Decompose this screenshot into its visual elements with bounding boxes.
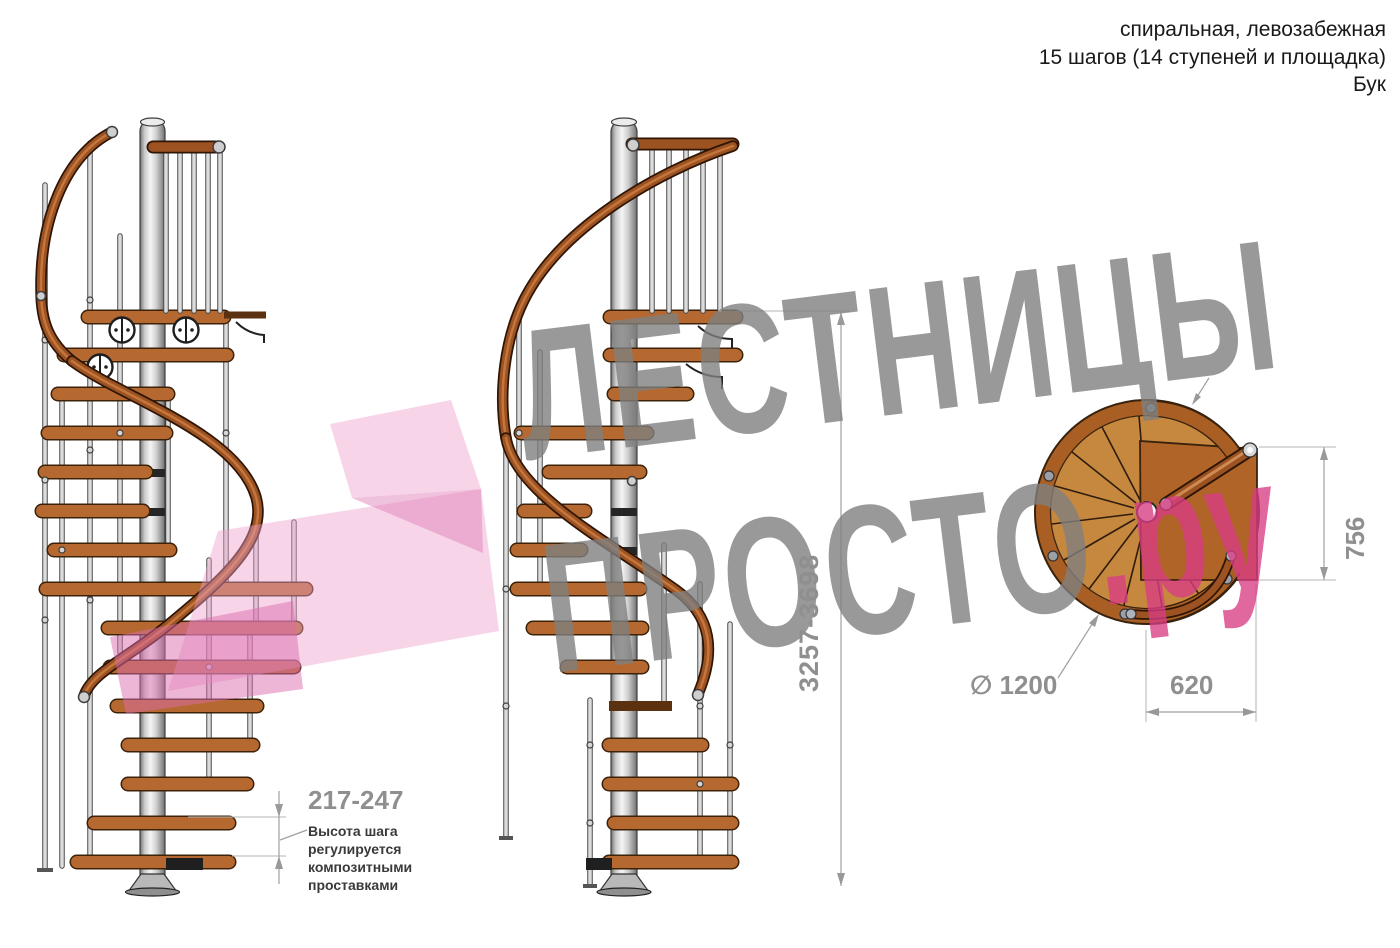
landing-depth-label: 756 [1340,517,1371,560]
total-height-label: 3257-3698 [794,554,825,692]
spec-header: спиральная, левозабежная 15 шагов (14 ст… [1039,16,1386,99]
handrail-end-cap [79,692,90,703]
landing-width-label: 620 [1170,670,1213,701]
dimension-step-height [188,791,307,884]
diameter-label: ∅ 1200 [970,670,1057,701]
step-height-label: 217-247 [308,785,403,816]
tread-bracket [236,322,264,343]
handrail-end-cap [107,127,118,138]
step-height-note: Высота шага регулируется композитными пр… [308,822,412,894]
spec-type: спиральная, левозабежная [1039,16,1386,44]
note-line: композитными [308,858,412,876]
top-guard-rail [153,141,225,311]
watermark-domain-suffix: .ру [1082,418,1290,645]
note-line: проставками [308,876,412,894]
spec-material: Бук [1039,71,1386,99]
side-view-left [37,118,307,896]
note-line: регулируется [308,840,412,858]
spec-steps: 15 шагов (14 ступеней и площадка) [1039,44,1386,72]
drawing-canvas: ЛЕСТНИЦЫПРОСТО.ру спиральная, левозабежн… [0,0,1400,948]
note-line: Высота шага [308,822,412,840]
